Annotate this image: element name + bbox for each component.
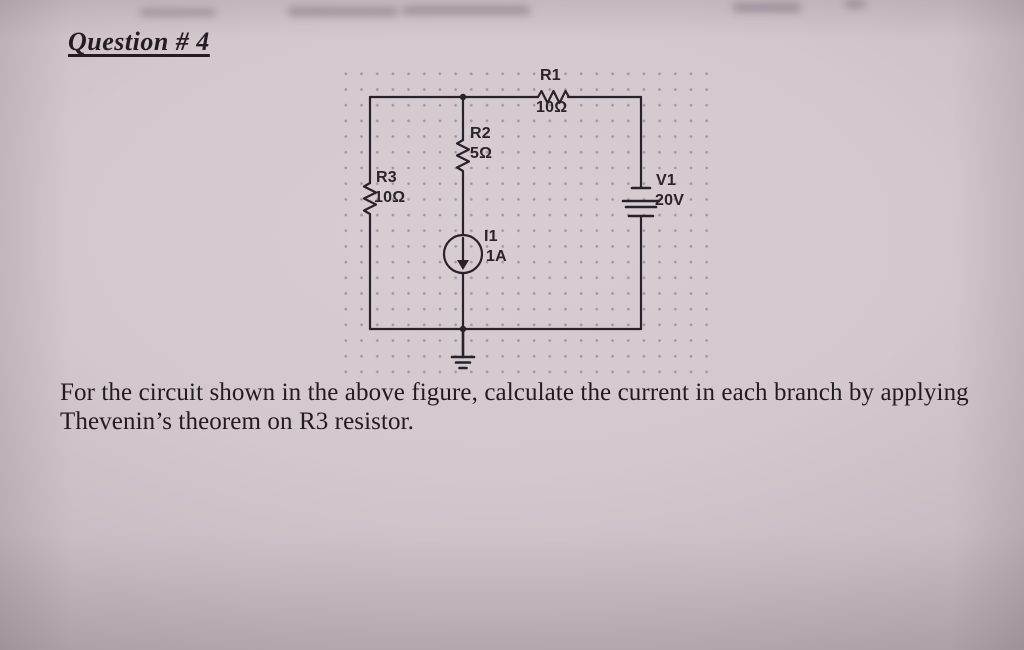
junction-dot-bottom [460, 326, 466, 332]
label-R1: R1 [540, 67, 561, 85]
junction-dot-top [460, 94, 466, 100]
label-I1: I1 [484, 228, 498, 246]
value-I1: 1A [486, 248, 507, 266]
ground-icon [452, 329, 474, 368]
current-source-I1 [444, 235, 482, 273]
current-arrow-down-icon [457, 260, 469, 270]
question-text-line-2: Thevenin’s theorem on R3 resistor. [60, 408, 414, 436]
resistor-R2 [457, 140, 469, 171]
label-R2: R2 [470, 125, 491, 143]
label-V1: V1 [656, 172, 676, 190]
battery-V1 [623, 188, 659, 216]
label-R3: R3 [376, 169, 397, 187]
circuit-schematic [0, 0, 1024, 650]
photographed-exam-page: Question # 4 [0, 0, 1024, 650]
value-R2: 5Ω [470, 145, 492, 163]
value-V1: 20V [655, 192, 684, 210]
question-text-line-1: For the circuit shown in the above figur… [60, 379, 969, 407]
value-R3: 10Ω [374, 189, 405, 207]
value-R1: 10Ω [536, 99, 567, 117]
